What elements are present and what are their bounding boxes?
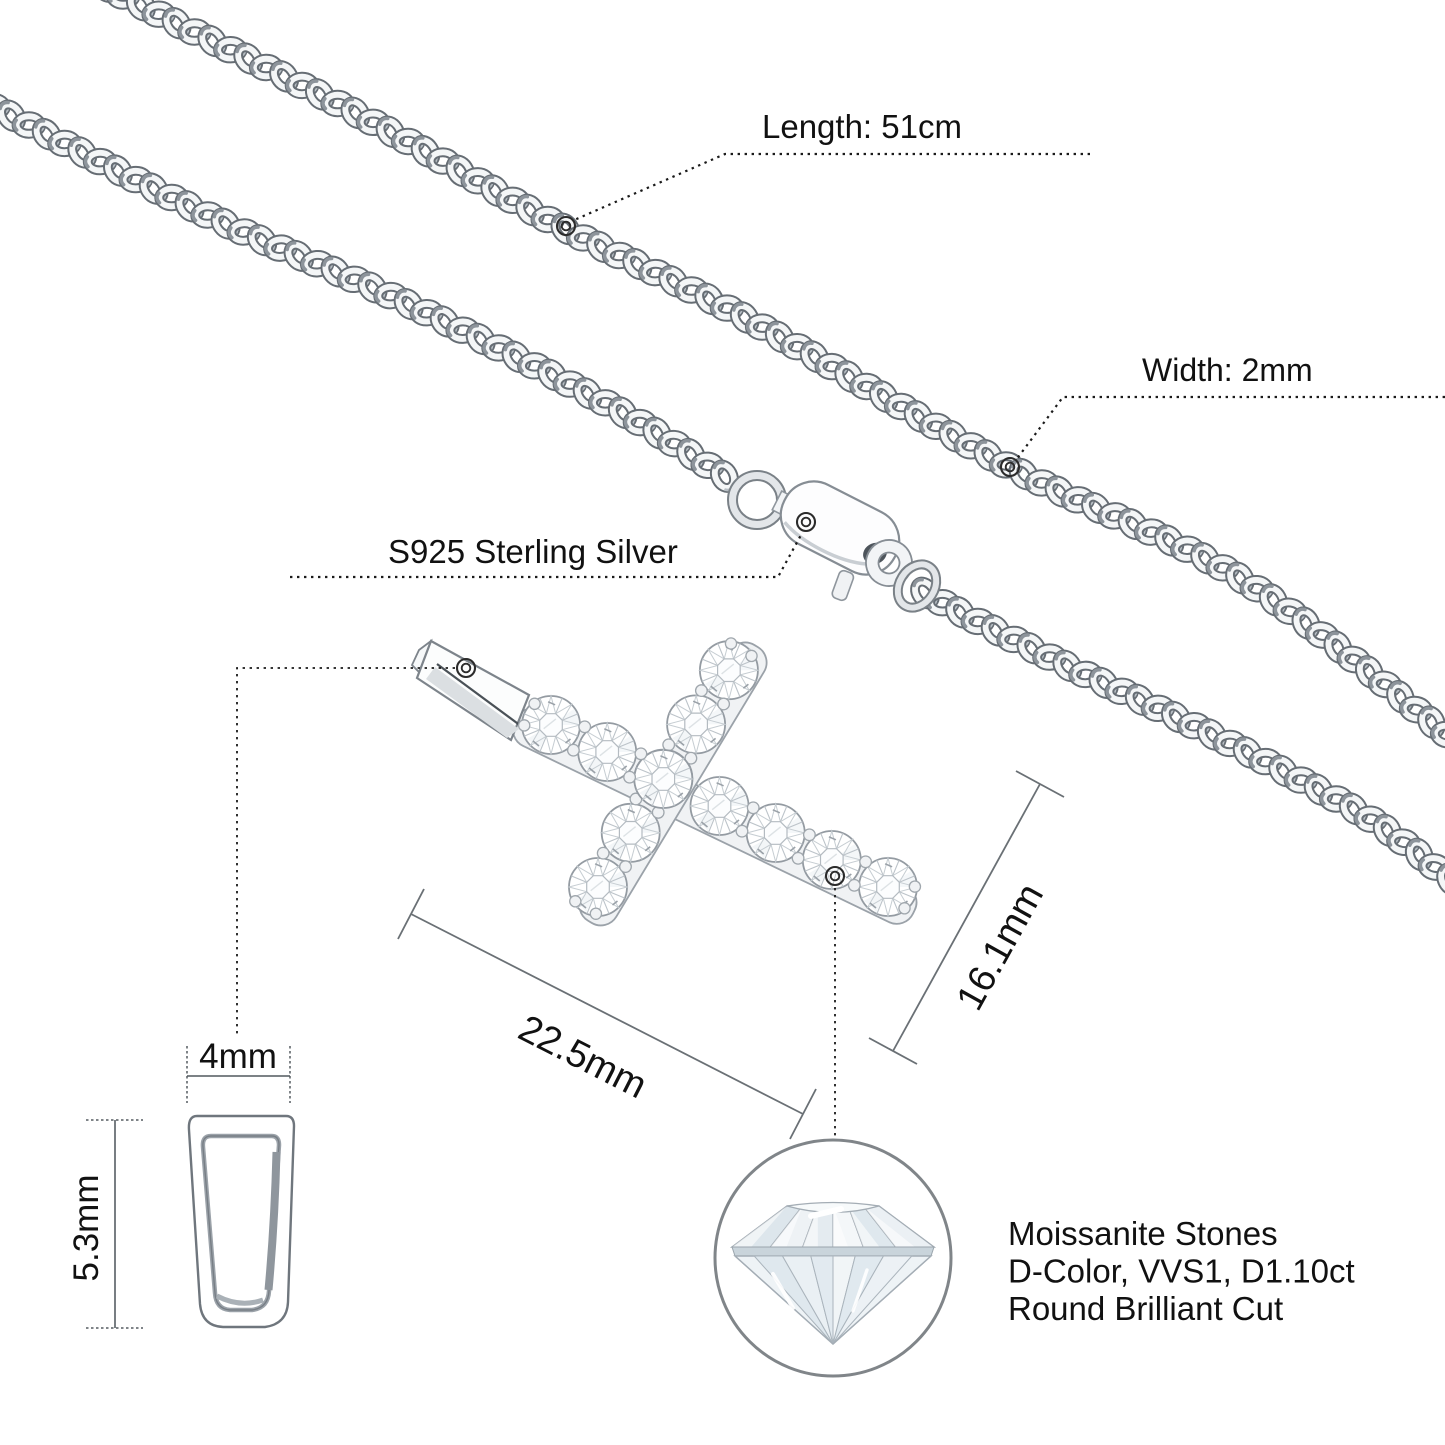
svg-text:Width: 2mm: Width: 2mm	[1142, 352, 1313, 388]
svg-text:Moissanite Stones: Moissanite Stones	[1008, 1215, 1278, 1252]
svg-text:Length: 51cm: Length: 51cm	[762, 108, 962, 145]
svg-text:5.3mm: 5.3mm	[67, 1175, 106, 1282]
svg-text:S925 Sterling Silver: S925 Sterling Silver	[388, 533, 678, 570]
svg-text:D-Color, VVS1, D1.10ct: D-Color, VVS1, D1.10ct	[1008, 1253, 1355, 1290]
svg-text:16.1mm: 16.1mm	[949, 877, 1052, 1017]
svg-text:22.5mm: 22.5mm	[512, 1007, 653, 1107]
svg-text:4mm: 4mm	[199, 1037, 277, 1076]
svg-text:Round Brilliant Cut: Round Brilliant Cut	[1008, 1290, 1283, 1327]
